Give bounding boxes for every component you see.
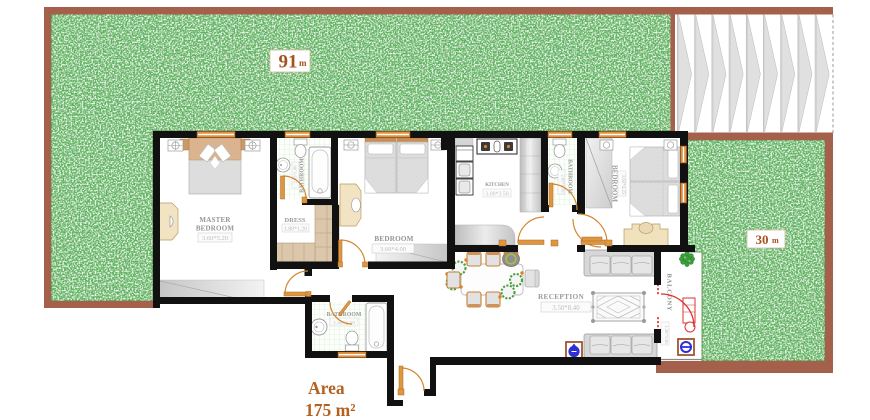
svg-text:RECEPTION: RECEPTION [538,292,585,301]
svg-text:3.60*4.25: 3.60*4.25 [620,175,625,196]
svg-text:m: m [299,58,307,68]
svg-text:BEDROOM: BEDROOM [196,225,235,233]
svg-text:30: 30 [756,232,769,247]
svg-text:m: m [772,236,779,245]
svg-text:91: 91 [279,52,298,73]
svg-text:DRESS: DRESS [285,217,306,224]
svg-text:3.60*4.00: 3.60*4.00 [380,246,406,253]
svg-text:BEDROOM: BEDROOM [374,235,413,243]
svg-text:BALCONY: BALCONY [666,273,673,311]
svg-text:2.05*1.50: 2.05*1.50 [561,175,566,194]
svg-text:Area: Area [308,378,345,398]
svg-text:3.00*3.50: 3.00*3.50 [485,192,508,198]
svg-text:175 m²: 175 m² [305,400,355,420]
svg-text:3.50*8.40: 3.50*8.40 [552,305,580,312]
svg-text:1.80*1.20: 1.80*1.20 [284,227,307,233]
svg-text:BATHROOM: BATHROOM [327,312,362,318]
svg-text:1.20*3.50: 1.20*3.50 [664,326,669,345]
svg-text:BEDROOM: BEDROOM [611,165,619,202]
svg-text:KITCHEN: KITCHEN [485,183,509,188]
svg-text:MASTER: MASTER [199,216,231,224]
svg-text:3.60*5.20: 3.60*5.20 [202,235,228,242]
